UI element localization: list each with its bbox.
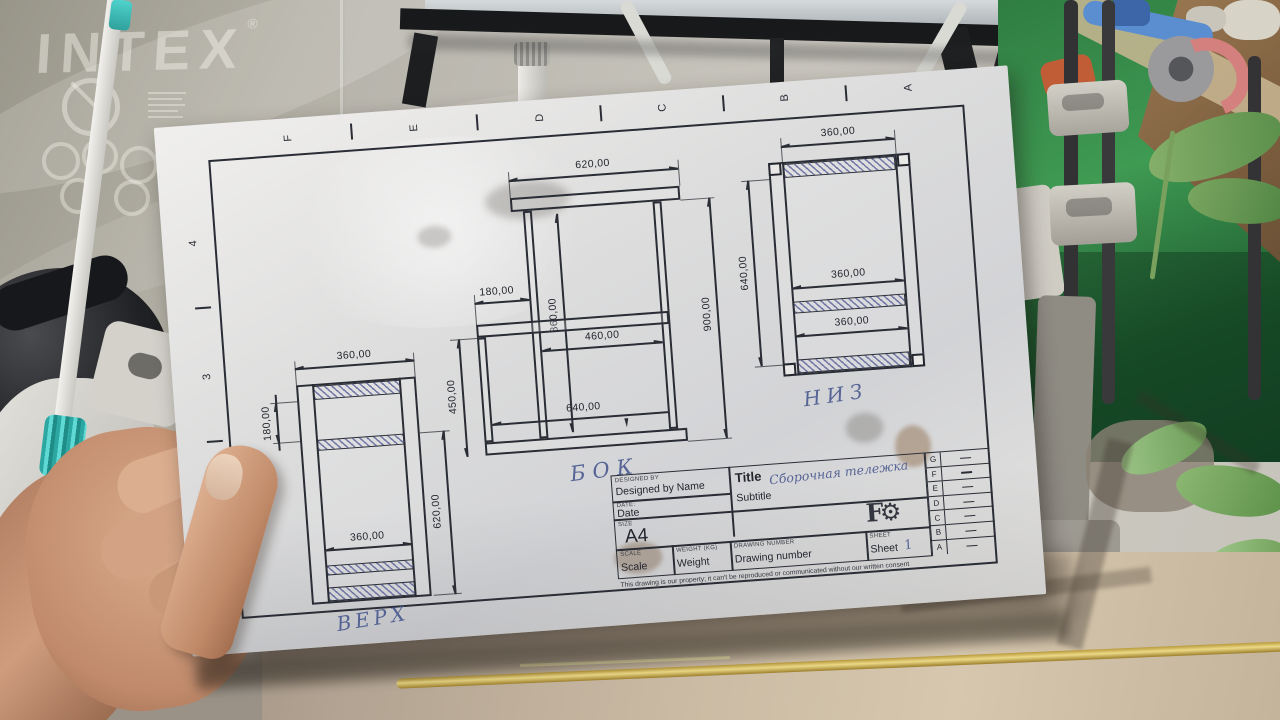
ext-line: [294, 361, 297, 385]
arrowhead: [898, 325, 907, 330]
dim-line: [443, 431, 457, 595]
warning-pictogram-icon: [114, 180, 150, 216]
revision-letter: E: [928, 481, 944, 496]
title-caption: Title: [734, 469, 762, 486]
arrowhead: [452, 585, 457, 594]
ladder-step-slot: [1061, 93, 1104, 112]
arrowhead: [624, 418, 629, 427]
pole-cap-teal: [108, 0, 132, 31]
view-label-niz: НИЗ: [802, 378, 870, 411]
arrowhead: [885, 136, 894, 141]
grid-tick: [599, 105, 602, 121]
corner-post: [911, 353, 925, 367]
drawing-sheet: F E D C B A 4 3 360,00: [154, 65, 1047, 656]
ext-line: [780, 138, 783, 162]
corner-post: [768, 162, 782, 176]
bottom-base: [485, 428, 688, 456]
grid-number: 3: [201, 373, 213, 380]
arrowhead: [554, 214, 559, 223]
arrowhead: [295, 366, 304, 371]
grid-tick: [844, 85, 847, 101]
frame-outline: [768, 153, 925, 377]
corner-post: [783, 363, 797, 377]
grid-number: 4: [187, 240, 199, 247]
revision-letter: D: [929, 496, 945, 511]
arrowhead: [273, 403, 278, 412]
arrowhead: [781, 144, 790, 149]
revision-dash: [963, 501, 974, 503]
intex-logo: INTEX®: [34, 15, 267, 86]
ext-line: [677, 160, 680, 186]
arrowhead: [706, 197, 711, 206]
ext-line: [508, 172, 511, 198]
grid-letter: C: [656, 103, 669, 112]
revision-dash: [962, 486, 973, 488]
weight-value: Weight: [677, 556, 710, 570]
arrowhead: [492, 421, 501, 426]
sheet-value: Sheet: [870, 542, 898, 556]
arrowhead: [669, 166, 678, 171]
arrowhead: [403, 541, 412, 546]
revision-strip: G F E D C B A: [925, 448, 997, 556]
ladder-base-post: [1030, 295, 1096, 539]
arrowhead: [464, 448, 469, 457]
revision-dash: [960, 457, 971, 459]
warning-pictogram-icon: [42, 142, 80, 180]
scale-value: Scale: [621, 560, 648, 574]
revision-letter: G: [926, 452, 942, 467]
ladder-step-slot: [1066, 197, 1113, 217]
grid-tick: [195, 306, 211, 309]
arrowhead: [474, 300, 483, 305]
arrowhead: [569, 423, 574, 432]
revision-dash: [965, 530, 976, 532]
dim-label: 900,00: [698, 279, 715, 350]
arrowhead: [441, 431, 446, 440]
warning-text-lines: [148, 92, 186, 118]
view-label-verh: ВЕРХ: [335, 601, 411, 636]
arrowhead: [792, 285, 801, 290]
arrowhead: [654, 339, 663, 344]
intex-logo-text: INTEX: [34, 16, 248, 85]
date-value: Date: [617, 507, 640, 521]
arrowhead: [325, 547, 334, 552]
arrowhead: [723, 429, 728, 438]
ext-line: [413, 353, 416, 377]
arrowhead: [508, 178, 517, 183]
grid-letter: B: [779, 94, 792, 102]
arrowhead: [758, 357, 763, 366]
revision-letter: B: [931, 525, 947, 540]
arrowhead: [745, 181, 750, 190]
grid-letter: F: [282, 134, 294, 142]
arrowhead: [895, 278, 904, 283]
ladder-rail: [1248, 56, 1261, 400]
grid-letter: E: [408, 124, 421, 132]
revision-dash: [961, 471, 972, 473]
view-niz: 360,00 640,00 360,00: [736, 117, 988, 443]
subtitle-value: Subtitle: [736, 490, 772, 505]
arrowhead: [276, 435, 281, 444]
warning-pictogram-icon: [120, 146, 158, 184]
grid-tick: [207, 440, 223, 443]
ext-line: [894, 130, 897, 154]
freecad-logo-icon: F ⚙: [865, 499, 915, 530]
ext-line: [434, 593, 462, 596]
grid-tick: [350, 124, 353, 140]
photo-scene: INTEX®: [0, 0, 1280, 720]
revision-dash: [964, 515, 975, 517]
revision-dash: [966, 545, 977, 547]
rock: [1222, 0, 1280, 40]
grid-letter: A: [902, 84, 915, 92]
arrowhead: [520, 297, 529, 302]
grid-letter: D: [534, 113, 547, 122]
arrowhead: [405, 358, 414, 363]
revision-letter: F: [927, 467, 943, 482]
ext-line: [420, 430, 450, 433]
size-value: A4: [624, 525, 649, 549]
grid-tick: [476, 114, 479, 130]
arrowhead: [456, 339, 461, 348]
revision-letter: C: [930, 511, 946, 526]
arrowhead: [542, 348, 551, 353]
registered-mark: ®: [247, 15, 267, 32]
dim-label: 620,00: [428, 476, 445, 547]
revision-letter: A: [932, 540, 948, 556]
corner-post: [897, 153, 911, 167]
arrowhead: [796, 333, 805, 338]
grid-tick: [722, 95, 725, 111]
ext-line: [688, 438, 732, 442]
